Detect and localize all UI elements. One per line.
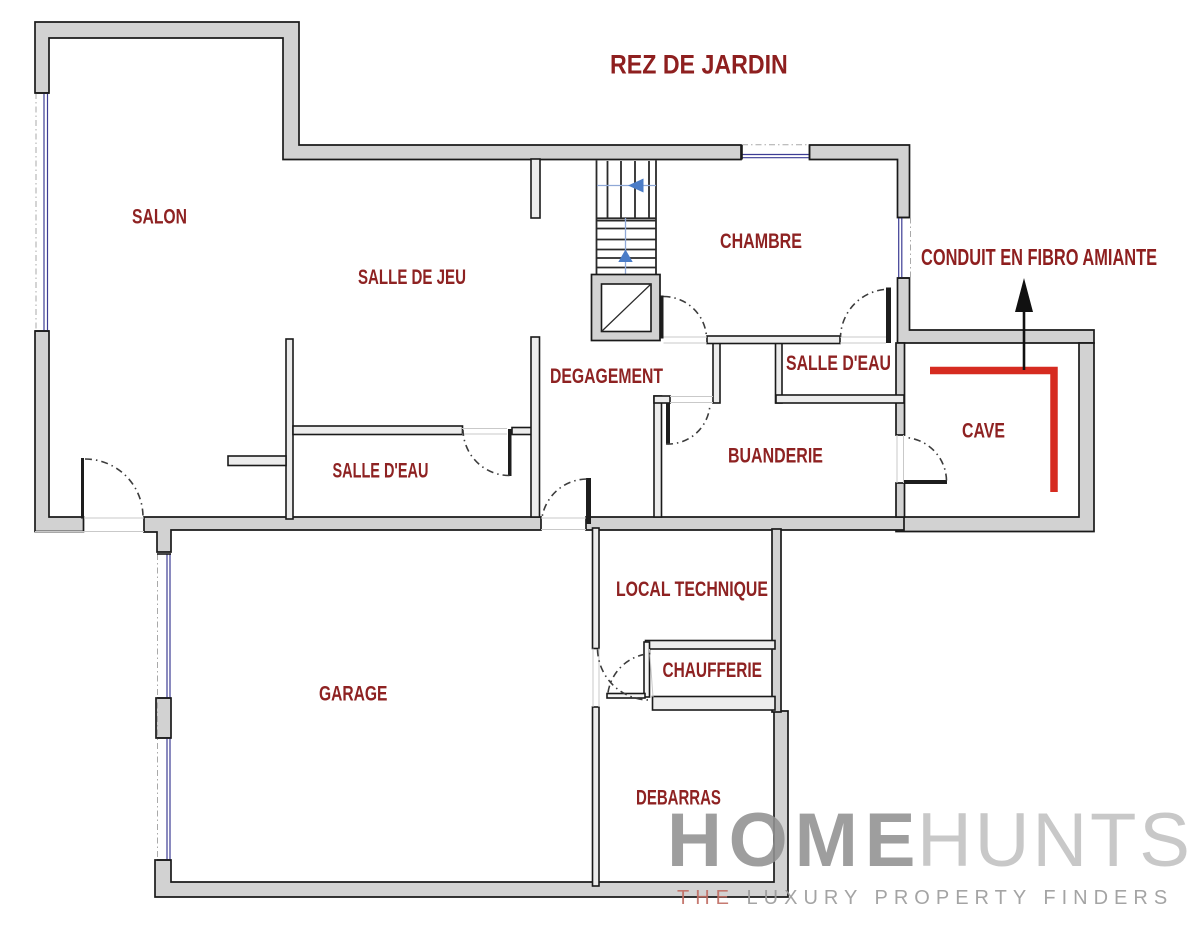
svg-text:CHAUFFERIE: CHAUFFERIE xyxy=(663,658,762,682)
svg-text:SALLE D'EAU: SALLE D'EAU xyxy=(333,459,429,482)
svg-text:HUNTS: HUNTS xyxy=(917,798,1193,883)
svg-text:BUANDERIE: BUANDERIE xyxy=(728,443,823,467)
svg-text:CONDUIT EN FIBRO AMIANTE: CONDUIT EN FIBRO AMIANTE xyxy=(921,245,1157,270)
svg-text:REZ DE JARDIN: REZ DE JARDIN xyxy=(610,50,788,80)
svg-text:HOME: HOME xyxy=(667,798,922,883)
svg-text:SALLE DE JEU: SALLE DE JEU xyxy=(358,264,466,288)
svg-text:GARAGE: GARAGE xyxy=(319,681,387,705)
svg-text:CHAMBRE: CHAMBRE xyxy=(720,229,802,253)
svg-text:DEGAGEMENT: DEGAGEMENT xyxy=(550,364,664,388)
svg-text:LOCAL TECHNIQUE: LOCAL TECHNIQUE xyxy=(616,577,768,601)
svg-text:THE LUXURY PROPERTY FINDERS: THE LUXURY PROPERTY FINDERS xyxy=(677,887,1173,909)
svg-text:SALON: SALON xyxy=(132,204,187,228)
svg-text:SALLE D'EAU: SALLE D'EAU xyxy=(786,351,891,375)
svg-text:CAVE: CAVE xyxy=(962,418,1005,442)
